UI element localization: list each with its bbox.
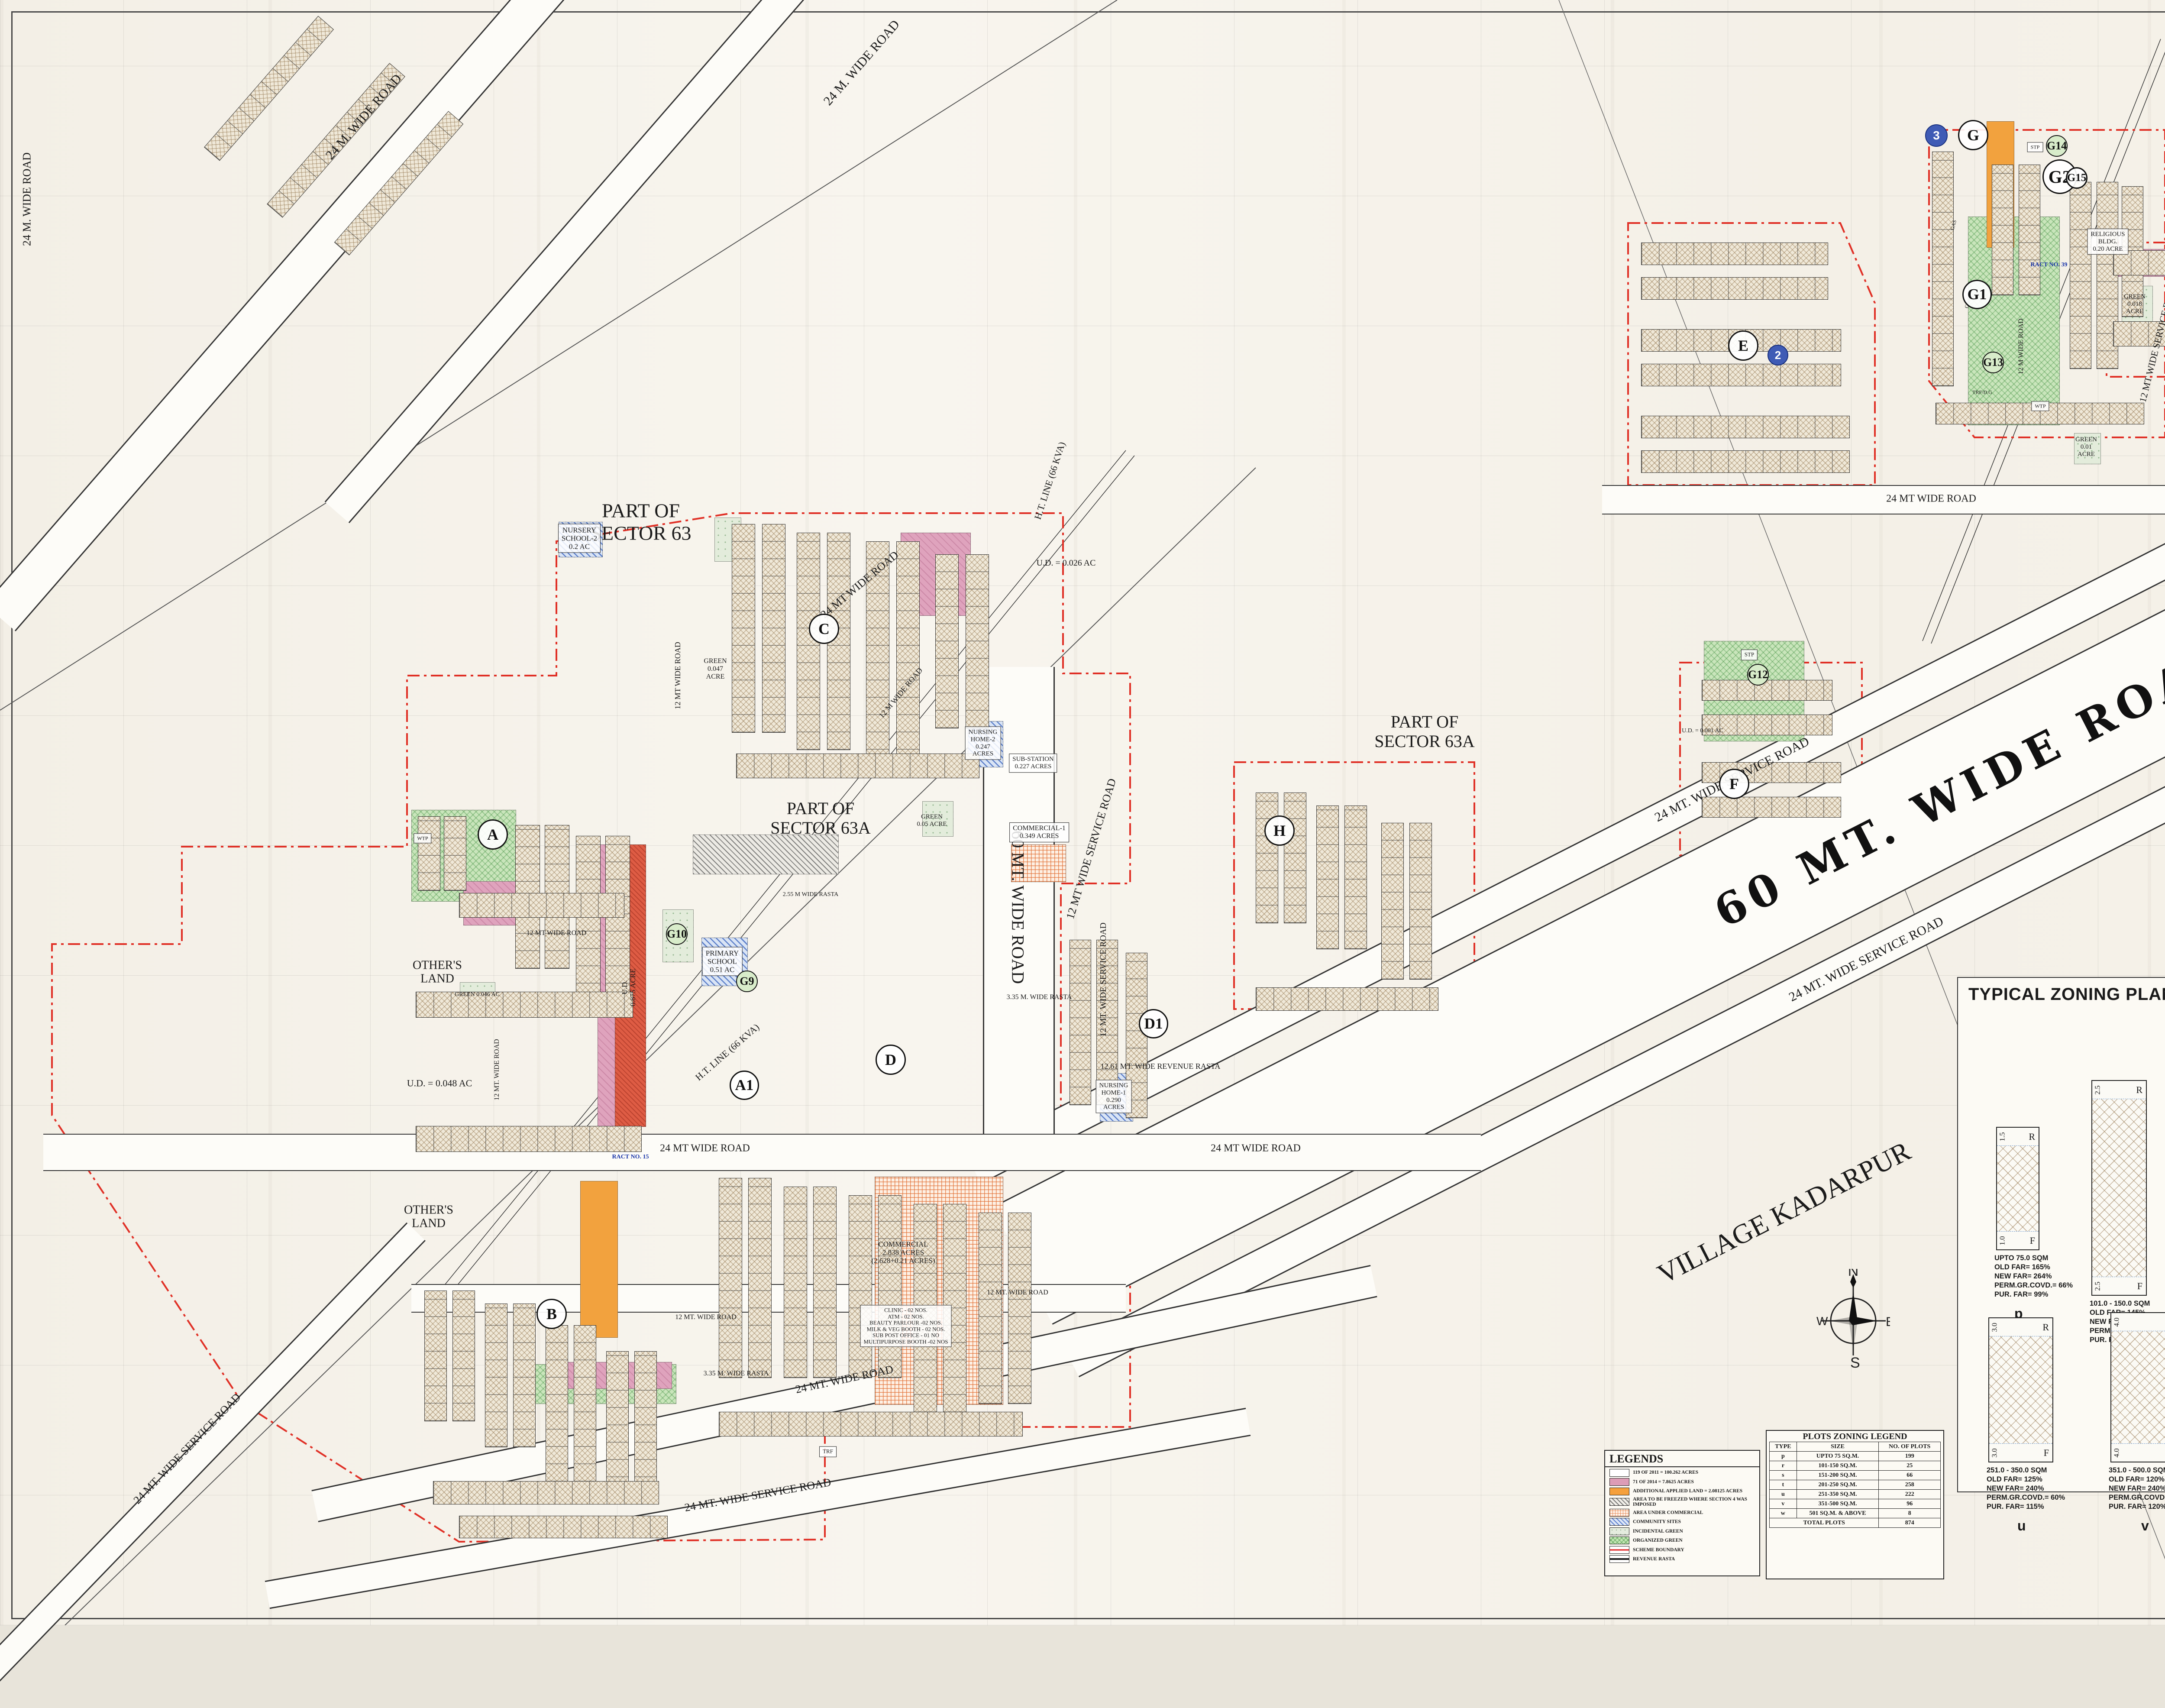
map-label: U.D. = 0.026 AC [1037,558,1096,568]
community-swatch [1609,1518,1629,1526]
typical-plan: 3.0R3.0F [1988,1317,2053,1462]
plot-strip [849,1195,872,1378]
plots-legend-cell: 25 [1879,1461,1941,1471]
plot-strip [1641,416,1850,438]
compass-n: N [1848,1269,1859,1279]
legend-label: AREA TO BE FREEZED WHERE SECTION 4 WAS I… [1633,1497,1755,1507]
plot-strip [1992,165,2013,295]
map-label: 12 MT WIDE ROAD [673,642,682,709]
plot-strip [1702,680,1832,701]
plot-strip [459,893,624,918]
legend-label: 119 OF 2011 = 100.262 ACRES [1633,1470,1698,1475]
plot-strip [1008,1213,1031,1404]
pocket-marker: G1 [1962,280,1992,309]
map-label: 12 MT. WIDE ROAD [987,1289,1048,1297]
plot-strip [513,1304,536,1447]
plots-legend-row: s151-200 SQ.M.66 [1770,1471,1941,1480]
map-label: PRIMARY SCHOOL 0.51 AC [702,947,743,976]
plan-buildable-zone [2092,1099,2146,1277]
plots-legend-cell: 351-500 SQ.M. [1797,1499,1879,1509]
plots-legend-cell: r [1770,1461,1797,1471]
legend-item: COMMUNITY SITES [1609,1518,1755,1526]
map-label: U.D. 0.875 ACRE [620,969,637,1006]
plot-strip [576,836,601,1001]
plots-legend-cell: 258 [1879,1480,1941,1490]
map-label: GREEN 0.046 AC [455,991,500,998]
number-marker: 2 [1768,345,1788,366]
map-label: U.D. = 0.001 AC [1682,728,1723,734]
plan-front-band: 1.0F [1997,1231,2039,1249]
map-label: NURSING HOME-1 0.290 ACRES [1096,1080,1132,1113]
compass: N E S W [1816,1269,1890,1368]
plan-front-band: 3.0F [1989,1443,2052,1462]
lic2011-swatch [1609,1469,1629,1477]
map-label: GREEN 0.01 ACRE [2075,436,2097,458]
pocket-marker: B [536,1299,567,1329]
map-label: 24 MT WIDE ROAD [660,1143,750,1155]
map-label: PART OF SECTOR 63A [1374,712,1475,751]
zone-patch [580,1181,618,1338]
plot-strip [418,816,440,891]
plots-legend-header: TYPE [1770,1442,1797,1452]
map-label: TRF [819,1446,837,1457]
map-label: U.D. = 0.048 AC [407,1078,472,1089]
front-dimension: 1.0 [1998,1236,2007,1245]
map-label: 3.35 M. WIDE RASTA [704,1370,769,1378]
plot-strip [878,1195,902,1378]
plot-strip [485,1304,507,1447]
plan-info: 351.0 - 500.0 SQM OLD FAR= 120% NEW FAR=… [2109,1466,2165,1512]
pocket-marker: G10 [666,923,688,945]
plot-strip [634,1351,657,1495]
plots-legend-header: NO. OF PLOTS [1879,1442,1941,1452]
legend-items: 119 OF 2011 = 100.262 ACRES71 OF 2014 = … [1609,1469,1755,1563]
plot-strip [966,554,989,728]
organized-swatch [1609,1537,1629,1544]
legend-label: REVENUE RASTA [1633,1556,1675,1562]
plan-front-band: 2.5F [2092,1277,2146,1295]
legend-item: SCHEME BOUNDARY [1609,1546,1755,1554]
plot-strip [459,1516,668,1538]
plots-legend-cell: 101-150 SQ.M. [1797,1461,1879,1471]
plots-legend-cell: 222 [1879,1490,1941,1499]
rear-dimension: 3.0 [1991,1323,1999,1332]
map-label: RELIGIOUS BLDG. 0.20 ACRE [2087,229,2128,255]
pocket-marker: D [876,1045,906,1075]
rear-label: R [2029,1131,2035,1142]
plot-strip [719,1412,1023,1436]
plots-legend-cell: 501 SQ.M. & ABOVE [1797,1509,1879,1518]
pocket-marker: E [1728,330,1758,361]
scheme-swatch [1609,1546,1629,1554]
map-label: TRF/D.G [1972,389,1992,395]
map-label: RACT NO. 39 [2031,262,2068,268]
map-label: WTP [2031,401,2049,411]
plot-strip [1344,805,1367,949]
plots-legend-cell: 201-250 SQ.M. [1797,1480,1879,1490]
typical-plan: 2.5R2.5F [2091,1080,2147,1296]
plan-front-band: 4.0F [2111,1443,2165,1462]
commercial-swatch [1609,1509,1629,1517]
plot-strip [1070,940,1091,1105]
plot-strip [1256,987,1438,1011]
freezed-swatch [1609,1498,1629,1506]
plan-buildable-zone [1997,1146,2039,1231]
legend-item: AREA UNDER COMMERCIAL [1609,1509,1755,1517]
rear-dimension: 2.5 [2094,1085,2102,1094]
plot-strip [1641,243,1828,265]
plots-legend-cell: u [1770,1490,1797,1499]
pocket-marker: A [478,819,508,850]
pocket-marker: G13 [1982,352,2004,373]
legend-title: LEGENDS [1605,1452,1759,1467]
compass-w: W [1816,1314,1828,1328]
map-label: STP [2027,142,2043,152]
plots-legend-cell: 199 [1879,1452,1941,1461]
plot-strip [1409,823,1432,980]
rasta-swatch [1609,1555,1629,1563]
map-label: GREEN 0.047 ACRE [704,657,727,681]
incidental-swatch [1609,1527,1629,1535]
front-label: F [2137,1281,2142,1292]
map-label: PART OF SECTOR 63 [590,499,691,544]
legend-label: AREA UNDER COMMERCIAL [1633,1510,1703,1515]
map-label: 12 M WIDE ROAD [2017,318,2025,374]
map-label: GREEN 0.05 ACRE [917,813,947,828]
legend-item: INCIDENTAL GREEN [1609,1527,1755,1535]
plots-legend-header: SIZE [1797,1442,1879,1452]
front-dimension: 2.5 [2094,1281,2102,1291]
typical-zoning-title: TYPICAL ZONING PLANS [1968,985,2165,1004]
plot-strip [1641,277,1828,300]
map-label: 24 MT WIDE ROAD [1211,1143,1301,1155]
plot-strip [416,992,633,1018]
map-label: COMMERCIAL-1 0.349 ACRES [1009,822,1069,842]
map-label: WTP [414,833,431,843]
map-label: OTHER'S LAND [404,1203,453,1231]
plots-legend-cell: t [1770,1480,1797,1490]
front-label: F [2044,1447,2049,1459]
front-dimension: 4.0 [2113,1448,2121,1457]
map-label: 60 MT. WIDE ROAD [1008,831,1028,984]
pocket-marker: G [1958,120,1988,150]
plot-strip [444,816,466,891]
addland-swatch [1609,1488,1629,1495]
plot-strip [935,554,959,728]
plot-strip [1702,797,1841,818]
legend-label: INCIDENTAL GREEN [1633,1529,1683,1534]
legend-label: COMMUNITY SITES [1633,1519,1681,1524]
plots-legend-total: TOTAL PLOTS874 [1770,1518,1941,1528]
legend-item: REVENUE RASTA [1609,1555,1755,1563]
map-label: STP [1741,650,1758,660]
plot-strip [896,541,920,767]
rear-dimension: 4.0 [2113,1317,2121,1326]
plots-legend-row: w501 SQ.M. & ABOVE8 [1770,1509,1941,1518]
typical-plan: 4.0R4.0F [2110,1312,2165,1462]
zoning-plan-sheet: { "doc": { "title": "REVISED & ADDITIONA… [0,0,2165,1625]
rear-label: R [2136,1084,2142,1096]
plot-strip [424,1291,447,1421]
map-label: GREEN 0.018 ACRE [2124,293,2146,315]
plot-strip [748,1178,772,1378]
map-label: 12 MT WIDE ROAD [527,929,587,937]
map-label: CLINIC - 02 NOS. ATM - 02 NOS. BEAUTY PA… [860,1305,952,1347]
plan-info: 251.0 - 350.0 SQM OLD FAR= 125% NEW FAR=… [1987,1466,2099,1512]
plot-strip [433,1481,659,1504]
legend-item: 71 OF 2014 = 7.8625 ACRES [1609,1478,1755,1486]
plan-rear-band: 3.0R [1989,1318,2052,1336]
plot-strip [813,1187,837,1378]
plots-legend-cell: w [1770,1509,1797,1518]
plot-strip [719,1178,742,1378]
rear-dimension: 1.5 [1998,1132,2007,1141]
pocket-marker: F [1719,769,1749,799]
plan-rear-band: 2.5R [2092,1081,2146,1099]
map-label: 24 MT WIDE ROAD [1886,493,1976,505]
map-label: OTHER'S LAND [413,959,462,986]
pocket-marker: A1 [730,1071,759,1100]
zone-patch [693,835,839,874]
plot-strip [1641,364,1841,386]
rear-label: R [2042,1322,2049,1333]
map-label: 3.35 M. WIDE RASTA [1007,993,1072,1001]
plan-rear-band: 1.5R [1997,1128,2039,1146]
plot-strip [416,1126,642,1152]
legend-label: ORGANIZED GREEN [1633,1538,1683,1543]
map-label: PART OF SECTOR 63A [770,799,871,838]
plots-legend-cell: 66 [1879,1471,1941,1480]
plan-buildable-zone [2111,1331,2165,1443]
plot-strip [784,1187,807,1378]
lic2014-swatch [1609,1478,1629,1486]
pocket-marker: D1 [1139,1009,1168,1038]
front-dimension: 3.0 [1991,1448,1999,1457]
plot-strip [1381,823,1404,980]
pocket-marker: H [1264,815,1295,846]
plots-legend-cell: 96 [1879,1499,1941,1509]
road-band [1602,485,2165,514]
plots-legend-row: v351-500 SQ.M.96 [1770,1499,1941,1509]
plots-legend-row: pUPTO 75 SQ.M.199 [1770,1452,1941,1461]
legend-label: ADDITIONAL APPLIED LAND = 2.08125 ACRES [1633,1488,1742,1494]
zoning-map: N E S W 24 M. WIDE ROAD24 M. WIDE ROAD24… [0,0,2165,1625]
plot-strip [1316,805,1339,949]
pocket-marker: G14 [2046,135,2068,157]
plot-strip [1932,152,1954,386]
plots-legend-cell: p [1770,1452,1797,1461]
plots-legend-row: t201-250 SQ.M.258 [1770,1480,1941,1490]
map-label: RACT NO. 15 [612,1154,649,1161]
plots-legend-box: PLOTS ZONING LEGEND TYPESIZENO. OF PLOTS… [1766,1430,1944,1579]
compass-s: S [1850,1355,1860,1368]
typical-zoning-panel: TYPICAL ZONING PLANS 1.5R1.0FUPTO 75.0 S… [1957,977,2165,1492]
pocket-marker: C [809,614,839,644]
pocket-marker: G9 [736,970,758,992]
plots-legend-cell: 151-200 SQ.M. [1797,1471,1879,1480]
map-label: COMMERCIAL 2.838 ACRES (2.628+0.21 ACRES… [871,1240,935,1265]
compass-e: E [1886,1315,1890,1329]
legend-item: AREA TO BE FREEZED WHERE SECTION 4 WAS I… [1609,1497,1755,1507]
map-label: 12 MT. WIDE ROAD [675,1313,737,1321]
plan-code: v [2141,1518,2149,1534]
legend-label: SCHEME BOUNDARY [1633,1547,1684,1553]
plot-strip [762,524,785,733]
plots-legend-cell: 251-350 SQ.M. [1797,1490,1879,1499]
plot-strip [2070,182,2091,369]
plot-strip [1284,793,1306,923]
pocket-marker: G15 [2066,167,2087,189]
plan-buildable-zone [1989,1336,2052,1443]
plot-strip [606,1351,629,1495]
paper-sheet: N E S W 24 M. WIDE ROAD24 M. WIDE ROAD24… [0,0,2165,1625]
map-label: NURSERY SCHOOL-2 0.2 AC [558,524,601,553]
plots-legend-cell: s [1770,1471,1797,1480]
plots-legend-row: r101-150 SQ.M.25 [1770,1461,1941,1471]
number-marker: 3 [1925,124,1948,147]
front-label: F [2030,1235,2035,1246]
plot-strip [1256,793,1278,923]
plot-strip [732,524,755,733]
plan-code: u [2017,1518,2026,1534]
plan-rear-band: 4.0R [2111,1313,2165,1331]
map-label: NURSING HOME-2 0.247 ACRES [965,726,1001,760]
plot-strip [574,1325,596,1482]
legend-item: 119 OF 2011 = 100.262 ACRES [1609,1469,1755,1477]
plot-strip [736,754,979,778]
map-label: 12.61 MT. WIDE REVENUE RASTA [1101,1062,1221,1071]
legend-item: ORGANIZED GREEN [1609,1537,1755,1544]
plot-strip [1641,450,1850,473]
map-label: 2.55 M WIDE RASTA [783,891,839,898]
plots-legend-row: u251-350 SQ.M.222 [1770,1490,1941,1499]
plots-legend-cell: v [1770,1499,1797,1509]
plot-strip [979,1213,1002,1404]
map-label: 12 MT. WIDE ROAD [493,1039,501,1100]
plot-strip [2019,165,2040,295]
pocket-marker: G12 [1747,664,1769,686]
legend-label: 71 OF 2014 = 7.8625 ACRES [1633,1479,1694,1485]
plot-strip [546,1325,568,1482]
map-label: 24 M. WIDE ROAD [20,152,33,246]
plots-legend-title: PLOTS ZONING LEGEND [1769,1432,1941,1442]
map-label: SUB-STATION 0.227 ACRES [1009,754,1057,773]
plots-legend-cell: UPTO 75 SQ.M. [1797,1452,1879,1461]
legend-item: ADDITIONAL APPLIED LAND = 2.08125 ACRES [1609,1488,1755,1495]
plots-legend-table: TYPESIZENO. OF PLOTSpUPTO 75 SQ.M.199r10… [1769,1442,1941,1528]
map-label: 12 MT. WIDE SERVICE ROAD [1099,922,1108,1037]
legend-box: LEGENDS 119 OF 2011 = 100.262 ACRES71 OF… [1604,1450,1760,1576]
plan-info: UPTO 75.0 SQM OLD FAR= 165% NEW FAR= 264… [1994,1254,2085,1300]
typical-plan: 1.5R1.0F [1996,1127,2039,1250]
plot-strip [452,1291,475,1421]
plots-legend-cell: 8 [1879,1509,1941,1518]
